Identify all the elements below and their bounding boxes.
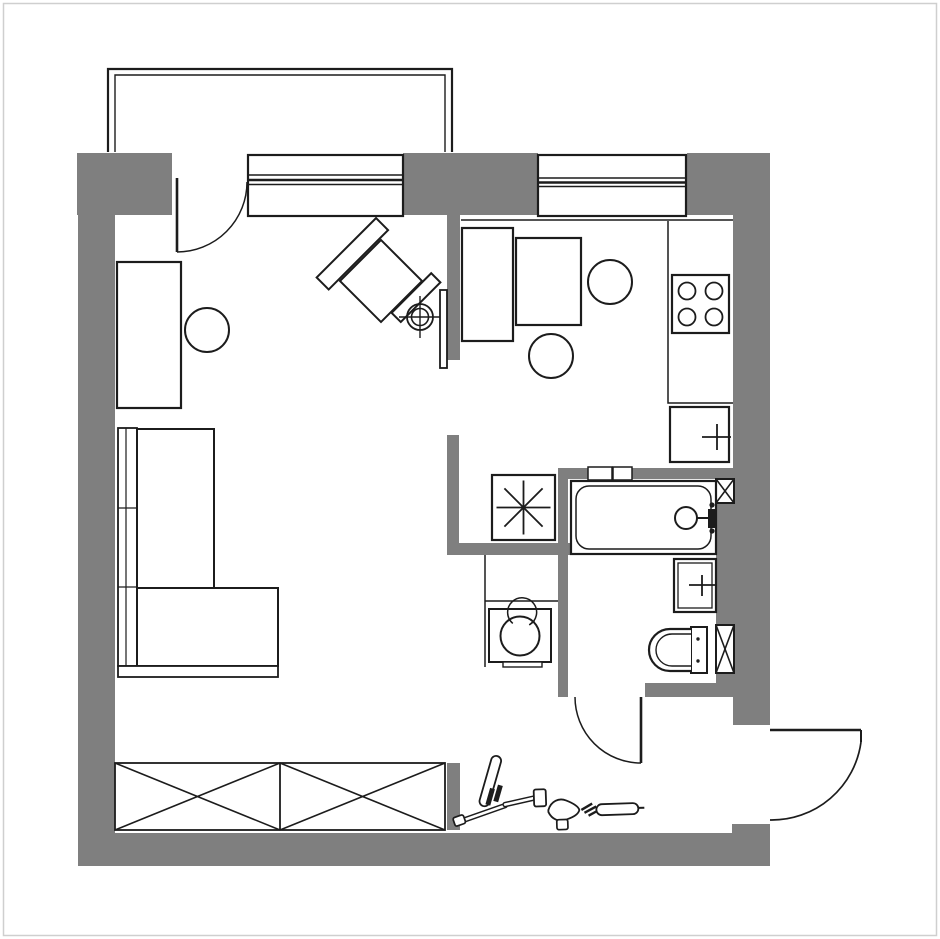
bathtub <box>571 481 716 554</box>
toilet-tank <box>691 627 707 673</box>
bathtub-outer <box>571 481 716 554</box>
toilet-button <box>696 637 699 640</box>
water-heater-star <box>492 475 555 540</box>
window-frame <box>538 155 686 216</box>
utility-niche <box>485 475 558 667</box>
bath-mixer <box>708 509 716 528</box>
bicycle-stem <box>534 789 547 806</box>
bottom-wall-step <box>732 824 770 834</box>
hallway-furniture <box>115 749 645 833</box>
living-room-window <box>248 155 403 216</box>
sofa-seat <box>137 429 214 588</box>
vent-shaft <box>716 625 734 673</box>
kitchen-table <box>516 238 581 325</box>
bicycle-saddle <box>548 799 580 821</box>
balcony-door <box>177 178 247 252</box>
door-swing-arc <box>575 697 641 763</box>
vent-shaft <box>716 479 734 503</box>
wardrobe <box>115 763 445 830</box>
window-frame <box>248 155 403 216</box>
armchair <box>317 218 441 342</box>
wash-basin <box>674 559 717 612</box>
bathroom-north-wall <box>558 468 734 479</box>
sofa-back-strip <box>118 428 137 666</box>
kitchen-chair <box>588 260 632 304</box>
living-room-furniture <box>117 218 447 677</box>
bathroom-west-wall <box>558 468 568 697</box>
door-swing-arc <box>770 742 861 820</box>
balcony-rail <box>108 69 452 152</box>
kitchen-cabinet <box>462 228 513 341</box>
vent-grille <box>588 467 612 480</box>
bathroom-fixtures <box>571 481 717 673</box>
tv <box>440 290 447 368</box>
bicycle <box>450 749 645 833</box>
kitchen-partition <box>447 215 460 360</box>
vent-grilles <box>588 467 632 480</box>
desk <box>117 262 181 408</box>
bath-tap <box>709 502 714 507</box>
left-wall <box>78 153 115 866</box>
right-wall <box>733 153 770 725</box>
hall-partition-vertical <box>447 435 459 553</box>
toilet <box>649 627 707 673</box>
balcony-outer-rail <box>108 69 452 152</box>
corner-sofa <box>118 428 278 677</box>
kitchen-window <box>538 155 686 216</box>
balcony-inner-rail <box>115 75 445 152</box>
top-wall-mid-block <box>403 153 538 215</box>
kitchen-furniture <box>461 220 733 462</box>
sofa-chaise <box>137 588 278 666</box>
door-swing-arc <box>177 182 247 252</box>
bottom-wall <box>78 833 770 866</box>
washing-machine <box>489 598 551 667</box>
desk-chair <box>185 308 229 352</box>
bathroom-door <box>575 697 641 763</box>
stove-body <box>672 275 729 333</box>
bicycle-fork <box>493 785 502 803</box>
toilet-button <box>696 659 699 662</box>
kitchen-sink <box>670 407 731 462</box>
sink-basin <box>670 407 729 462</box>
bicycle-pedal <box>557 819 568 829</box>
bicycle-rear-wheel <box>596 803 638 815</box>
floor-plan-canvas <box>0 0 940 939</box>
bath-tap <box>709 528 714 533</box>
stove <box>672 275 729 333</box>
kitchen-chair <box>529 334 573 378</box>
floor-plan-drawing <box>0 0 940 939</box>
entry-door <box>770 730 861 820</box>
vent-grille <box>613 467 632 480</box>
bathroom-south-wall <box>645 683 734 697</box>
sofa-front-strip <box>118 666 278 677</box>
washer-drawer <box>503 662 542 667</box>
